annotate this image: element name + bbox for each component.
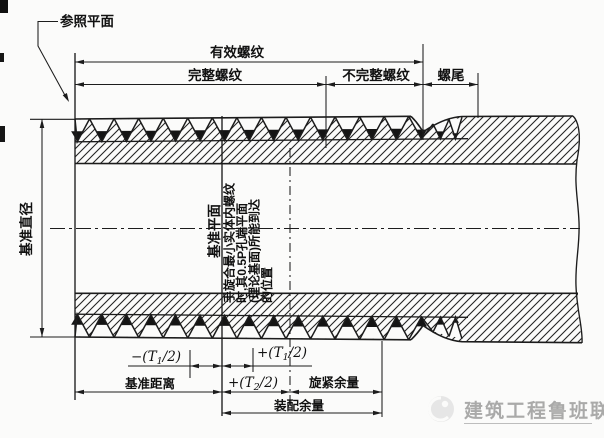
gauge-diameter-label: 基准直径 xyxy=(18,202,34,256)
tightening-allowance-label: 旋紧余量 xyxy=(308,375,360,390)
hand-tight-note-line-4: 的位置 xyxy=(259,267,274,303)
gauge-plane-label: 基准平面 xyxy=(206,204,222,258)
drawing-canvas: 参照平面 有效螺纹 完整螺纹 不完整螺纹 螺尾 基准直径 基准平面 手旋合最小实… xyxy=(0,0,604,438)
effective-thread-label: 有效螺纹 xyxy=(210,44,264,60)
minus-t1-half-label: −(T1/2) xyxy=(131,349,181,367)
incomplete-thread-label: 不完整螺纹 xyxy=(342,67,410,83)
reference-plane-leader xyxy=(38,22,67,100)
complete-thread-label: 完整螺纹 xyxy=(188,67,242,83)
gauge-length-label: 基准距离 xyxy=(124,376,175,391)
plus-t2-half-label: +(T2/2) xyxy=(228,375,278,393)
pipe-wall-sections xyxy=(75,116,582,343)
plus-t1-half-label: +(T1/2) xyxy=(257,345,307,363)
watermark-text: 建筑工程鲁班联盟 xyxy=(464,399,604,422)
scan-artifacts xyxy=(0,0,8,142)
reference-plane-label: 参照平面 xyxy=(60,13,114,29)
luban-alliance-logo xyxy=(428,396,454,422)
labels: 参照平面 有效螺纹 完整螺纹 不完整螺纹 螺尾 基准直径 基准平面 手旋合最小实… xyxy=(18,13,465,413)
assembly-allowance-label: 装配余量 xyxy=(273,398,325,413)
pipe-thread-diagram: 参照平面 有效螺纹 完整螺纹 不完整螺纹 螺尾 基准直径 基准平面 手旋合最小实… xyxy=(0,0,604,438)
watermark: 建筑工程鲁班联盟 xyxy=(428,396,604,424)
thread-runout-label: 螺尾 xyxy=(438,67,465,83)
pipe-outlines xyxy=(50,53,582,400)
